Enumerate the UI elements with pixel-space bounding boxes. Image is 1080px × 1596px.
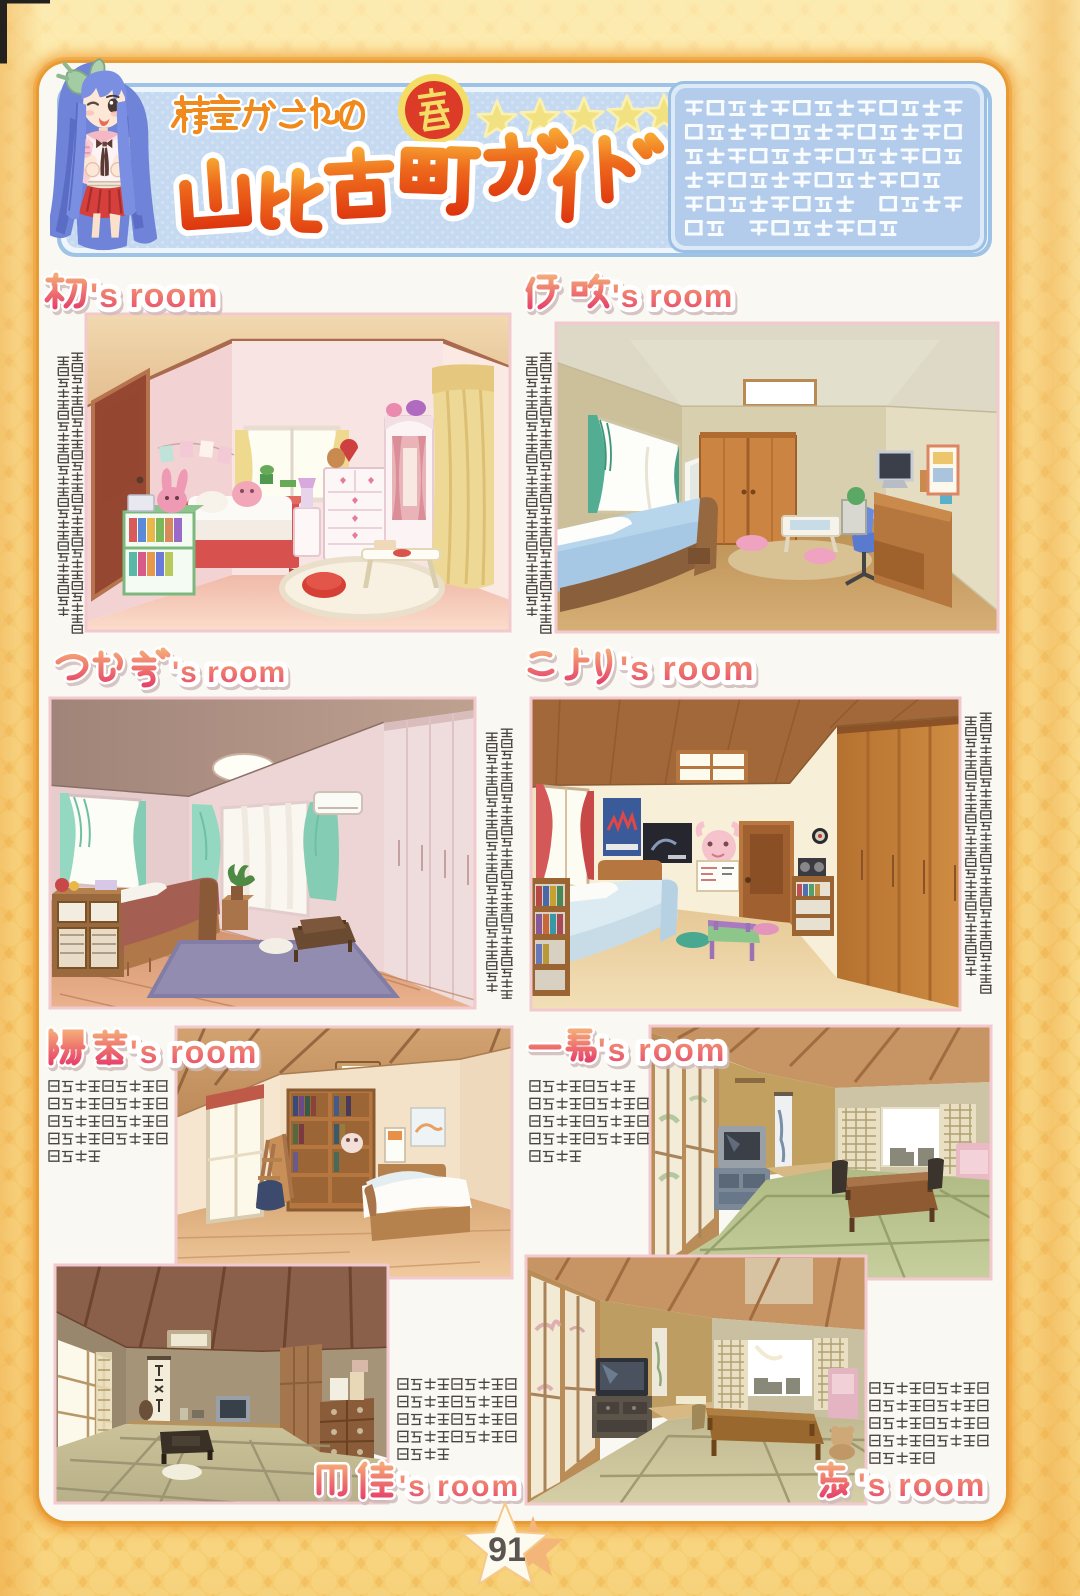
svg-text:91: 91	[488, 1531, 526, 1569]
svg-text:'s room: 's room	[90, 277, 218, 315]
svg-text:'s room: 's room	[130, 1034, 258, 1070]
svg-text:'s room: 's room	[858, 1467, 986, 1503]
svg-text:'s room: 's room	[620, 650, 755, 688]
svg-text:'s room: 's room	[399, 1470, 520, 1503]
svg-text:'s room: 's room	[172, 656, 286, 689]
svg-text:'s room: 's room	[598, 1032, 726, 1068]
svg-text:'s room: 's room	[612, 278, 733, 314]
